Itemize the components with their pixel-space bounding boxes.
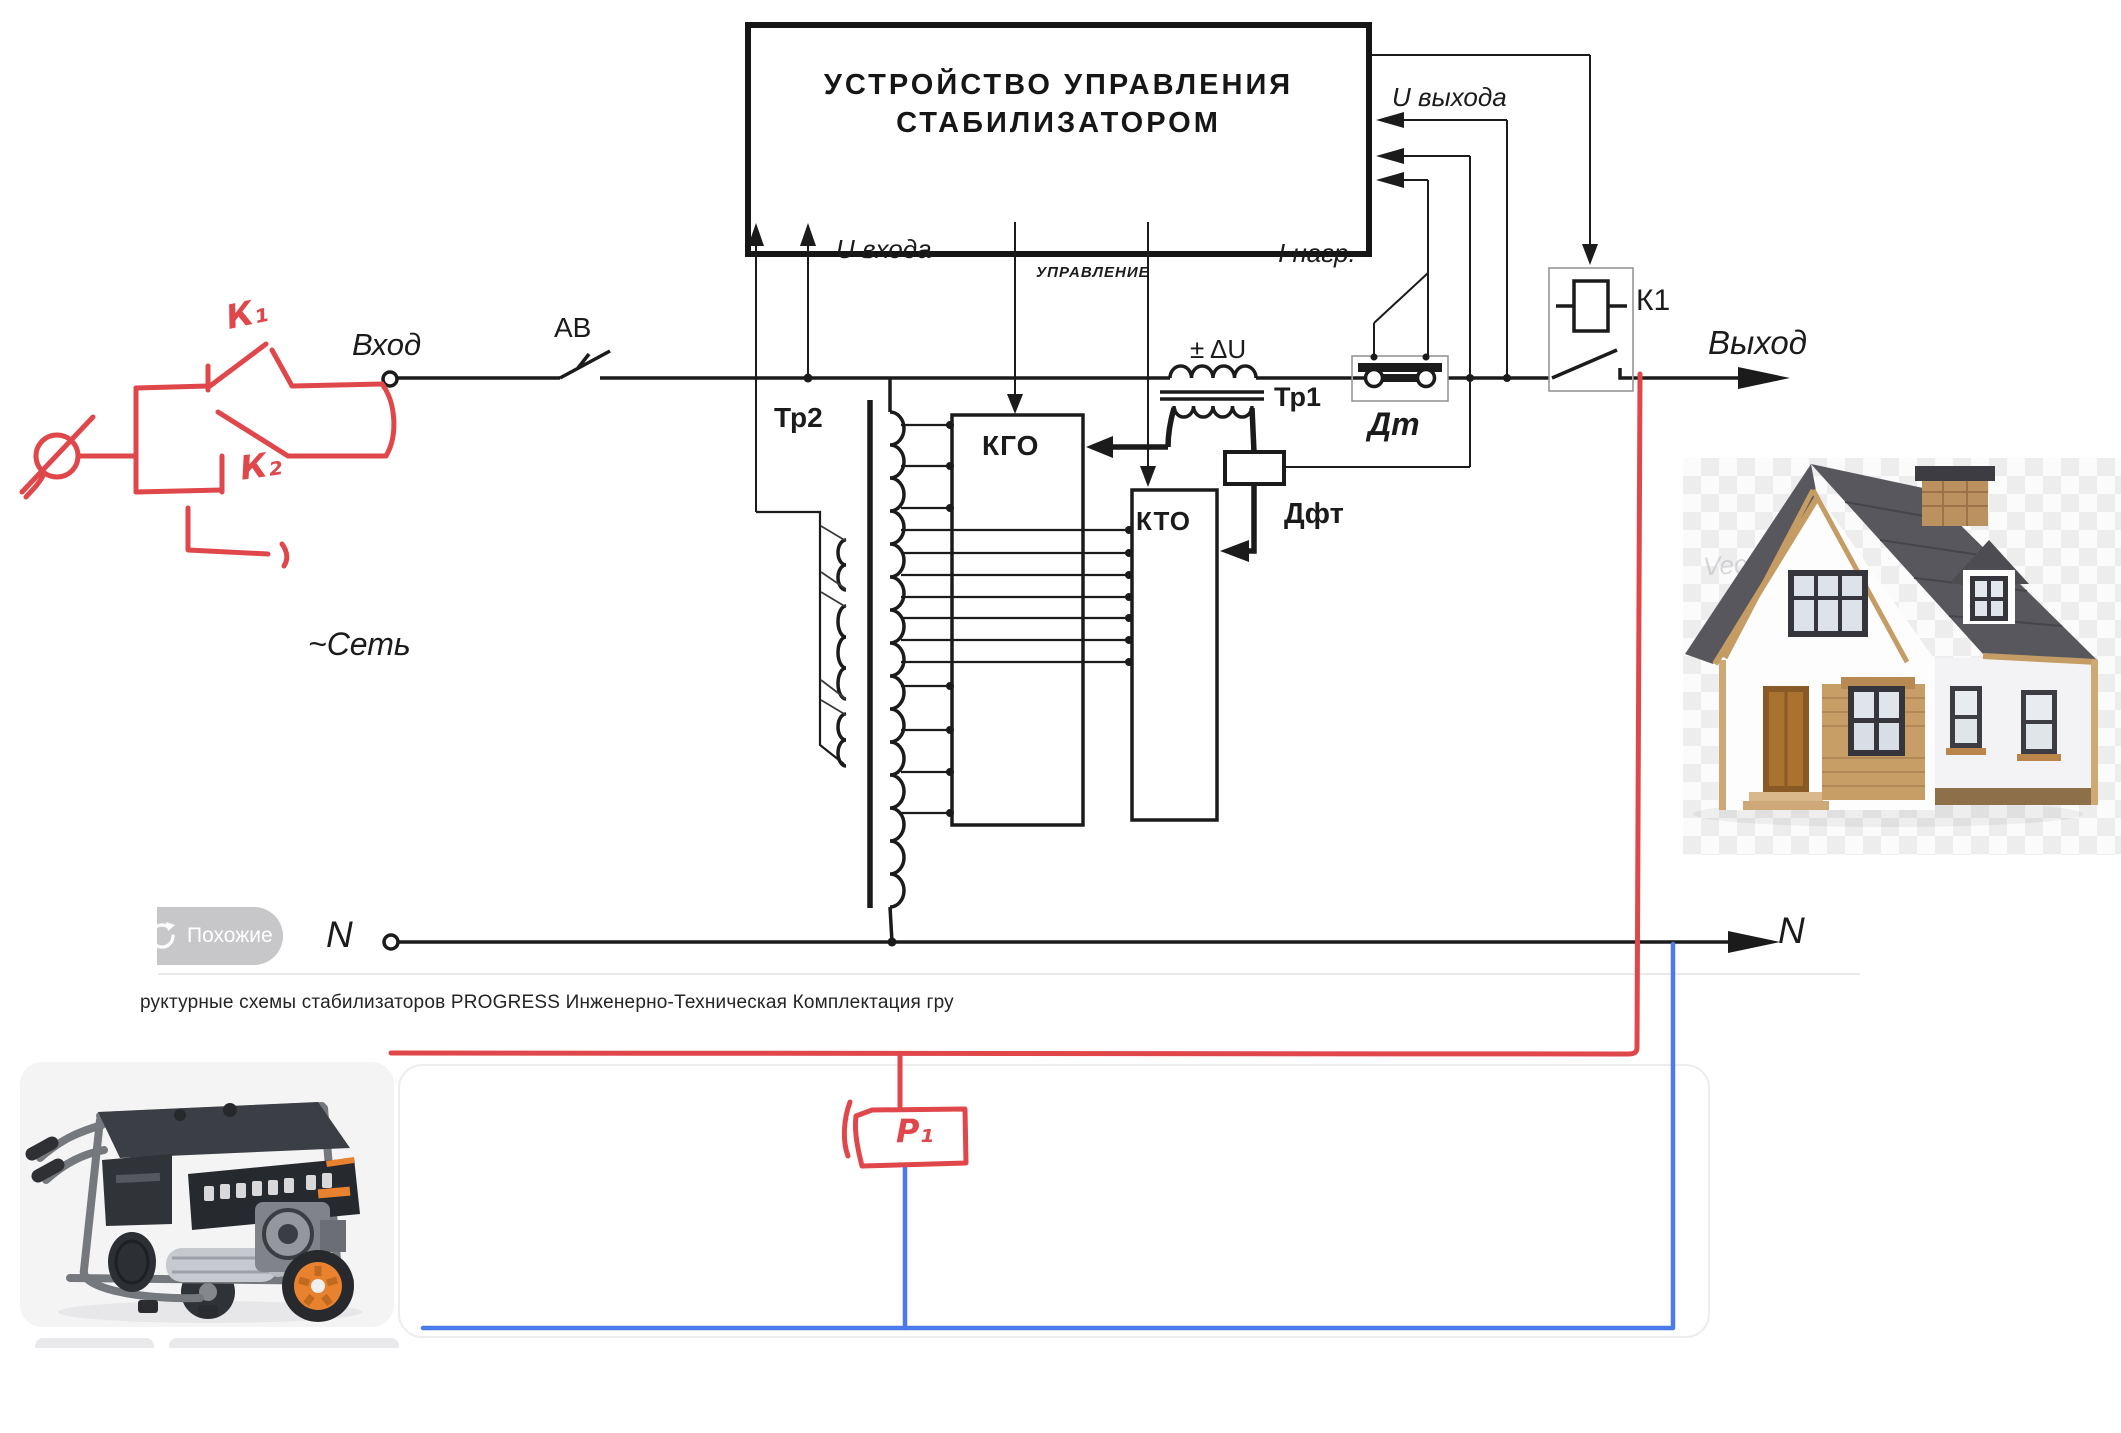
label-input: Вход [352, 327, 421, 363]
image-caption-link[interactable]: руктурные схемы стабилизаторов PROGRESS … [140, 992, 954, 1014]
kgo-box [952, 415, 1168, 825]
label-u-input: U входа [836, 234, 932, 265]
label-breaker-av: АВ [554, 312, 591, 344]
label-i-load: I нагр. [1278, 238, 1356, 269]
red-bypass-switch-k1 [136, 344, 382, 390]
label-delta-u: ± ΔU [1190, 334, 1246, 365]
main-power-line [383, 367, 1790, 389]
label-control: УПРАВЛЕНИЕ [1036, 264, 1150, 281]
label-kgo: КГО [982, 430, 1039, 462]
house-illustration [1683, 458, 2121, 855]
house-chimney [1922, 478, 1988, 526]
hand-label-k2: К₂ [237, 443, 283, 487]
generator-photo [20, 1062, 394, 1327]
divider-line [158, 973, 1860, 975]
next-row-card-stub [169, 1338, 399, 1348]
label-neutral-left: N [326, 914, 353, 956]
current-sensor-dt [1352, 354, 1448, 402]
label-kto: КТО [1136, 506, 1191, 537]
related-thumbnail-generator[interactable] [20, 1062, 394, 1327]
control-unit-box: УСТРОЙСТВО УПРАВЛЕНИЯ СТАБИЛИЗАТОРОМ [745, 22, 1372, 257]
similar-button-label: Похожие [187, 924, 273, 948]
hand-label-p1: Р₁ [896, 1112, 933, 1150]
breaker-av-switch [560, 351, 610, 378]
next-row-card-stub [35, 1338, 154, 1348]
label-u-output: U выхода [1392, 82, 1507, 113]
transformer-tr2 [756, 378, 1133, 942]
neutral-line [384, 931, 1780, 953]
label-dt: Дт [1368, 406, 1420, 443]
image-search-viewer: Vecteezy Vecteezy [0, 0, 2121, 1433]
label-neutral-right: N [1778, 910, 1805, 952]
red-generator-source-symbol [22, 417, 93, 497]
label-output: Выход [1708, 324, 1807, 362]
control-unit-title-line1: УСТРОЙСТВО УПРАВЛЕНИЯ [751, 66, 1366, 104]
hand-label-k1: К₁ [222, 290, 271, 337]
related-image-house[interactable]: Vecteezy Vecteezy [1683, 458, 2121, 855]
label-tr1: Тр1 [1274, 382, 1321, 413]
transformer-tr1 [1160, 366, 1264, 452]
control-unit-title-line2: СТАБИЛИЗАТОРОМ [751, 104, 1366, 142]
dft-box [1225, 452, 1284, 484]
related-thumbnail-empty[interactable] [398, 1064, 1710, 1338]
label-dft: Дфт [1284, 498, 1344, 531]
similar-button[interactable]: Похожие [157, 907, 283, 965]
label-k1-relay: К1 [1636, 284, 1670, 318]
label-mains: ~Сеть [308, 626, 411, 663]
label-tr2: Тр2 [774, 402, 823, 434]
similar-refresh-icon [157, 919, 179, 953]
relay-k1 [1549, 268, 1633, 391]
